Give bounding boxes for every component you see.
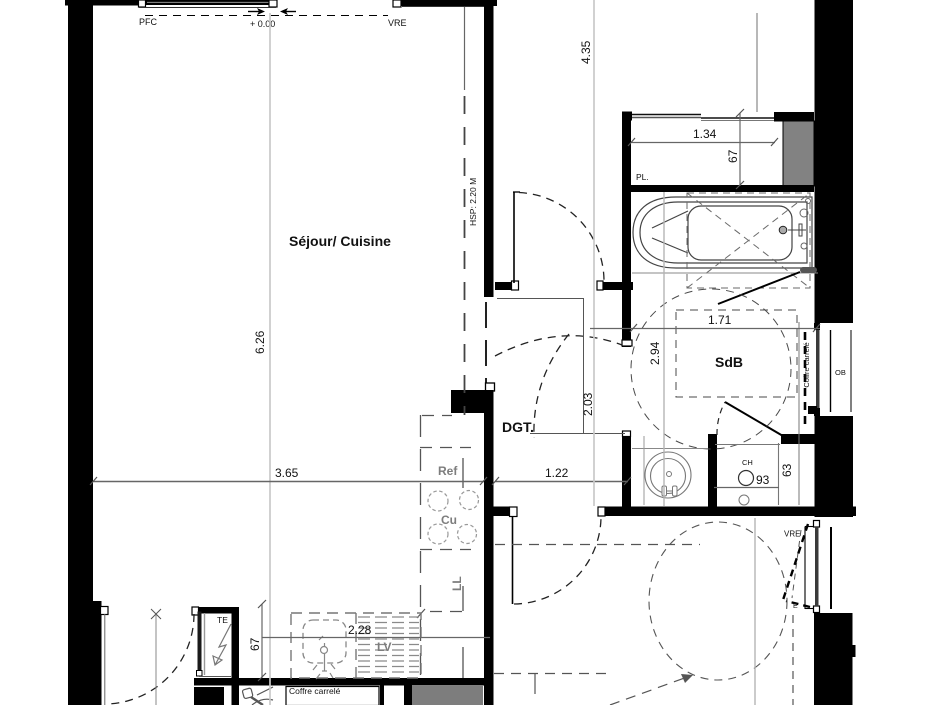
svg-text:LV: LV	[377, 640, 391, 654]
svg-text:67: 67	[248, 637, 262, 651]
svg-text:Séjour/ Cuisine: Séjour/ Cuisine	[289, 233, 391, 249]
svg-text:2.03: 2.03	[581, 392, 595, 416]
svg-text:1.22: 1.22	[545, 466, 569, 480]
svg-text:VRE: VRE	[388, 18, 407, 28]
svg-text:93: 93	[756, 473, 770, 487]
svg-text:HSP: 2.20 M: HSP: 2.20 M	[468, 178, 478, 226]
svg-text:1.34: 1.34	[693, 127, 717, 141]
svg-text:DGT.: DGT.	[502, 419, 534, 435]
svg-text:Ref: Ref	[438, 464, 458, 478]
svg-text:3.65: 3.65	[275, 466, 299, 480]
svg-text:Coffre carrelé: Coffre carrelé	[289, 686, 341, 696]
svg-text:63: 63	[780, 463, 794, 477]
svg-text:+ 0.00: + 0.00	[250, 19, 275, 29]
svg-text:CH: CH	[742, 458, 753, 467]
svg-text:LL: LL	[450, 576, 464, 591]
svg-text:2.28: 2.28	[348, 623, 372, 637]
svg-text:Coffre carrelé: Coffre carrelé	[802, 342, 811, 387]
svg-text:67: 67	[726, 149, 740, 163]
svg-text:6.26: 6.26	[253, 330, 267, 354]
svg-text:SdB: SdB	[715, 354, 743, 370]
svg-text:E: E	[793, 603, 798, 610]
svg-text:4.35: 4.35	[579, 40, 593, 64]
svg-text:PFC: PFC	[139, 17, 158, 27]
svg-text:OB: OB	[835, 368, 846, 377]
svg-text:2.94: 2.94	[648, 341, 662, 365]
svg-text:PL.: PL.	[636, 172, 649, 182]
svg-text:TE: TE	[217, 615, 228, 625]
svg-text:VRE: VRE	[784, 530, 800, 539]
svg-text:Cu: Cu	[441, 513, 457, 527]
svg-text:1.71: 1.71	[708, 313, 732, 327]
